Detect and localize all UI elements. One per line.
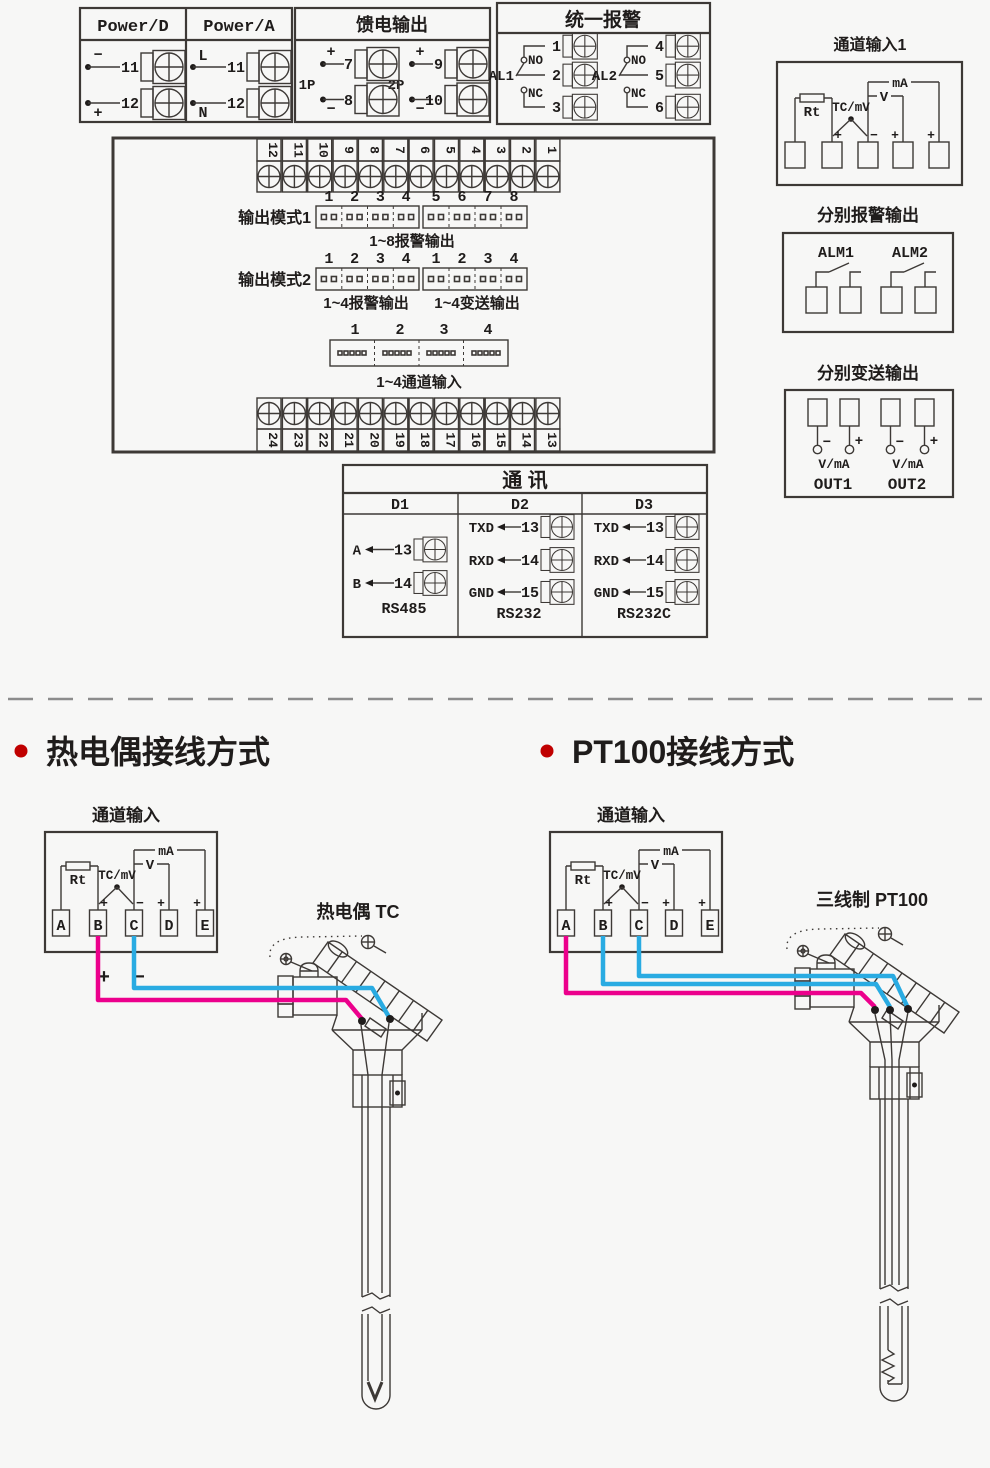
terminal-number: 5 [655, 68, 664, 85]
relay-label: AL1 [489, 69, 514, 85]
v-ma-label: V/mA [892, 457, 923, 472]
terminal-number: 15 [521, 585, 539, 602]
terminal-number: 14 [646, 553, 664, 570]
terminal-letter: D [669, 918, 678, 935]
terminal-sign: − [415, 101, 424, 118]
pt-wire-blue-b [603, 936, 890, 1007]
terminal-number: 24 [265, 432, 280, 448]
pt-probe-stem [880, 1099, 908, 1401]
comm-d2: TXD 13 RXD 14 GND 15 RS232 [469, 515, 574, 623]
terminal-number: 2 [552, 68, 561, 85]
terminal-sign: + [326, 44, 335, 61]
jumper-number: 1 [350, 322, 359, 339]
terminal-number: 8 [366, 146, 381, 154]
pt-section-title: PT100接线方式 [572, 734, 794, 770]
no-label: NO [631, 54, 647, 68]
comm-d1: A 13 B 14 RS485 [353, 537, 447, 618]
terminal-number: 13 [394, 543, 412, 560]
terminal-sign: + [415, 44, 424, 61]
section-header-pt: PT100接线方式 [541, 734, 795, 770]
mode-2-caption-right: 1~4变送输出 [434, 294, 519, 312]
output-mode-1-label: 输出模式1 [238, 208, 311, 227]
terminal-number: 13 [646, 520, 664, 537]
terminal-letter: B [598, 918, 607, 935]
jumper-number: 1 [324, 189, 333, 206]
terminal-sign: − [93, 47, 102, 64]
comm-standard: RS232C [617, 606, 671, 623]
terminal-sign: L [198, 48, 207, 65]
nc-label: NC [528, 87, 544, 101]
terminal-number: 9 [341, 146, 356, 154]
pt-probe-label: 三线制 PT100 [816, 889, 928, 910]
terminal-number: 1 [544, 146, 559, 154]
jumper-number: 6 [457, 189, 466, 206]
power-d-title: Power/D [97, 18, 168, 37]
comm-d3: TXD 13 RXD 14 GND 15 RS232C [594, 515, 699, 623]
terminal-letter: A [561, 918, 570, 935]
output-mode-2: 输出模式2 1 2 3 4 1 2 3 4 1~4报警输出 1~4变送输出 [238, 251, 527, 312]
terminal-number: 16 [468, 432, 483, 448]
terminal-number: 3 [493, 146, 508, 154]
separate-transmit-output-title: 分别变送输出 [817, 363, 919, 383]
relay-label: AL2 [592, 69, 617, 85]
terminal-letter: E [705, 918, 714, 935]
feed-output-title: 馈电输出 [356, 14, 428, 35]
section-header-tc: 热电偶接线方式 [15, 734, 271, 770]
terminal-sign: − [326, 101, 335, 118]
jumper-number: 4 [509, 251, 518, 268]
alm1-label: ALM1 [818, 245, 854, 262]
wiring-diagram-svg: Rt TC/mV V mA + − + + [0, 0, 990, 1468]
tc-probe-head [270, 936, 442, 1108]
terminal-number: 23 [290, 432, 305, 448]
terminal-number: 6 [655, 100, 664, 117]
tc-wiring-diagram: 通道输入 A B C D E + − 热电偶 TC [45, 805, 442, 1409]
jumper-number: 4 [402, 189, 411, 206]
terminal-sign: N [198, 105, 207, 122]
feed-output-box: 馈电输出 1P 2P + − 7 8 + − 9 10 [295, 8, 490, 122]
tc-probe-label: 热电偶 TC [317, 901, 400, 922]
signal-label: B [353, 577, 362, 593]
channel-input-1-box: 通道输入1 [777, 35, 962, 185]
comm-col-name: D1 [391, 497, 409, 514]
jumper-number: 5 [431, 189, 440, 206]
jumper-number: 2 [457, 251, 466, 268]
channel-input-title: 通道输入 [92, 805, 160, 825]
power-a-title: Power/A [203, 18, 275, 37]
jumper-number: 3 [376, 251, 385, 268]
thermocouple-junction [368, 1382, 382, 1399]
output-mode-2-label: 输出模式2 [238, 270, 311, 289]
v-ma-label: V/mA [818, 457, 849, 472]
terminal-number: 4 [655, 39, 664, 56]
channel-input-1-title: 通道输入1 [834, 35, 907, 54]
pt-wire-blue-c [639, 936, 907, 1006]
comm-standard: RS485 [381, 601, 426, 618]
out-sign: − [896, 435, 904, 451]
terminal-number: 10 [316, 142, 331, 158]
terminal-sign: + [93, 105, 102, 122]
terminal-number: 14 [394, 576, 412, 593]
jumper-number: 2 [350, 251, 359, 268]
terminal-number: 11 [227, 60, 245, 77]
signal-label: RXD [594, 554, 619, 570]
channel-connector: 1 2 3 4 1~4通道输入 [330, 322, 508, 391]
signal-label: A [353, 544, 362, 560]
mode-1-caption: 1~8报警输出 [369, 232, 454, 250]
terminal-number: 11 [290, 142, 305, 158]
terminal-number: 10 [425, 93, 443, 110]
terminal-number: 5 [443, 146, 458, 154]
unified-alarm-title: 统一报警 [565, 8, 641, 31]
out-sign: + [930, 434, 938, 450]
nc-label: NC [631, 87, 647, 101]
jumper-number: 2 [350, 189, 359, 206]
pt-wire-pink [566, 936, 875, 1007]
alarm-relay-al2: AL2 NO NC 4 5 6 [592, 33, 701, 120]
terminal-number: 12 [265, 142, 280, 158]
separate-transmit-output-box: 分别变送输出 − + − + V/mA V/mA OUT1 OUT2 [785, 363, 953, 497]
bullet-icon [15, 745, 28, 758]
mode-2-caption-left: 1~4报警输出 [323, 294, 408, 312]
terminal-number: 21 [341, 432, 356, 448]
terminal-number: 2 [519, 146, 534, 154]
unified-alarm-box: 统一报警 AL1 NO NC 1 2 3 AL2 NO NC 4 5 6 [489, 3, 710, 124]
channel-input-title: 通道输入 [597, 805, 665, 825]
signal-label: RXD [469, 554, 494, 570]
jumper-number: 4 [483, 322, 492, 339]
comm-col-name: D3 [635, 497, 653, 514]
terminal-number: 3 [552, 100, 561, 117]
terminal-number: 17 [443, 432, 458, 448]
terminal-number: 19 [392, 432, 407, 448]
comm-title: 通 讯 [502, 469, 548, 492]
signal-label: TXD [594, 521, 619, 537]
terminal-letter: A [56, 918, 65, 935]
alarm-relay-al1: AL1 NO NC 1 2 3 [489, 33, 598, 120]
jumper-number: 8 [509, 189, 518, 206]
bullet-icon [541, 745, 554, 758]
out-sign: − [823, 435, 831, 451]
rear-panel: 12 11 10 9 8 7 6 5 4 3 2 1 输出模式1 1 2 3 4… [113, 138, 714, 452]
terminal-number: 14 [519, 432, 534, 448]
pt-wiring-diagram: 通道输入 A B C D E 三线制 PT100 [550, 805, 959, 1401]
terminal-number: 12 [121, 96, 139, 113]
terminal-number: 18 [417, 432, 432, 448]
terminal-letter: D [164, 918, 173, 935]
comm-col-name: D2 [511, 497, 529, 514]
out2-label: OUT2 [888, 476, 926, 494]
power-box: Power/D Power/A − + 11 12 L N 11 12 [80, 8, 292, 122]
separate-alarm-output-title: 分别报警输出 [817, 205, 919, 225]
terminal-letter: B [93, 918, 102, 935]
jumper-number: 4 [402, 251, 411, 268]
out1-label: OUT1 [814, 476, 852, 494]
tc-probe-stem [362, 1107, 390, 1409]
terminal-letter: C [129, 918, 138, 935]
terminal-number: 9 [434, 57, 443, 74]
terminal-number: 13 [521, 520, 539, 537]
terminal-number: 1 [552, 39, 561, 56]
terminal-letter: E [200, 918, 209, 935]
wiring-diagram-page: Rt TC/mV V mA + − + + [0, 0, 990, 1468]
terminal-number: 12 [227, 96, 245, 113]
jumper-number: 3 [439, 322, 448, 339]
signal-label: GND [469, 586, 494, 602]
terminal-number: 13 [544, 432, 559, 448]
group-label: 1P [299, 78, 316, 94]
jumper-number: 2 [395, 322, 404, 339]
terminal-number: 4 [468, 146, 483, 154]
separate-alarm-output-box: 分别报警输出 ALM1 ALM2 [783, 205, 953, 332]
terminal-number: 11 [121, 60, 139, 77]
terminal-number: 22 [316, 432, 331, 448]
comm-standard: RS232 [496, 606, 541, 623]
output-mode-1: 输出模式1 1 2 3 4 5 6 7 8 1~8报警输出 [238, 189, 527, 250]
terminal-strip-top: 12 11 10 9 8 7 6 5 4 3 2 1 [257, 139, 560, 192]
terminal-number: 20 [366, 432, 381, 448]
terminal-number: 15 [493, 432, 508, 448]
tc-section-title: 热电偶接线方式 [46, 734, 270, 770]
comm-box: 通 讯 D1 D2 D3 A 13 B 14 RS485 TXD 13 RXD … [343, 465, 707, 637]
signal-label: GND [594, 586, 619, 602]
signal-label: TXD [469, 521, 494, 537]
jumper-number: 1 [431, 251, 440, 268]
terminal-letter: C [634, 918, 643, 935]
terminal-strip-bottom: 24 23 22 21 20 19 18 17 16 15 14 13 [257, 398, 560, 451]
terminal-number: 15 [646, 585, 664, 602]
terminal-number: 7 [344, 57, 353, 74]
channel-connector-caption: 1~4通道输入 [376, 373, 461, 391]
rtd-element [882, 1350, 894, 1382]
terminal-number: 8 [344, 93, 353, 110]
jumper-number: 1 [324, 251, 333, 268]
alm2-label: ALM2 [892, 245, 928, 262]
jumper-number: 3 [376, 189, 385, 206]
out-sign: + [855, 434, 863, 450]
jumper-number: 3 [483, 251, 492, 268]
terminal-number: 7 [392, 146, 407, 154]
jumper-number: 7 [483, 189, 492, 206]
terminal-number: 6 [417, 146, 432, 154]
terminal-number: 14 [521, 553, 539, 570]
no-label: NO [528, 54, 544, 68]
